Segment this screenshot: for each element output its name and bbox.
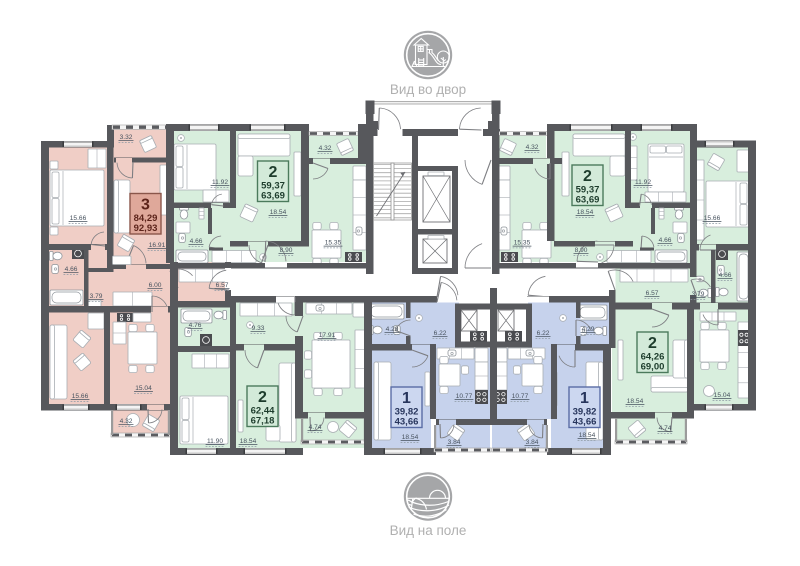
svg-text:4.32: 4.32 <box>120 418 133 425</box>
svg-text:15.66: 15.66 <box>72 393 89 400</box>
svg-text:18.54: 18.54 <box>402 434 419 441</box>
svg-text:8.90: 8.90 <box>575 247 588 254</box>
svg-text:15.66: 15.66 <box>704 215 721 222</box>
svg-text:4.66: 4.66 <box>659 237 672 244</box>
svg-text:15.35: 15.35 <box>514 240 531 247</box>
svg-text:6.00: 6.00 <box>149 282 162 289</box>
svg-text:11.90: 11.90 <box>207 438 223 445</box>
svg-text:10.77: 10.77 <box>456 393 473 400</box>
svg-text:18.54: 18.54 <box>627 398 644 405</box>
svg-text:18.54: 18.54 <box>579 432 596 439</box>
svg-text:16.91: 16.91 <box>149 242 166 249</box>
svg-text:15.35: 15.35 <box>325 240 342 247</box>
svg-text:Вид во двор: Вид во двор <box>390 82 466 97</box>
svg-text:2: 2 <box>648 335 657 352</box>
svg-text:2: 2 <box>269 164 278 181</box>
svg-text:4.29: 4.29 <box>386 326 399 333</box>
svg-text:15.04: 15.04 <box>714 392 731 399</box>
svg-text:43,66: 43,66 <box>395 417 419 428</box>
svg-text:4.66: 4.66 <box>190 238 203 245</box>
svg-text:6.22: 6.22 <box>537 330 550 337</box>
svg-text:15.04: 15.04 <box>135 385 152 392</box>
svg-text:3.79: 3.79 <box>90 293 103 300</box>
svg-text:3.84: 3.84 <box>526 439 539 446</box>
svg-text:9.33: 9.33 <box>252 325 265 332</box>
svg-text:4.66: 4.66 <box>719 272 732 279</box>
svg-text:18.54: 18.54 <box>240 438 257 445</box>
svg-text:69,00: 69,00 <box>641 362 665 373</box>
svg-text:6.57: 6.57 <box>216 282 229 289</box>
svg-text:63,69: 63,69 <box>261 191 285 202</box>
svg-text:15.66: 15.66 <box>70 215 87 222</box>
svg-text:3.79: 3.79 <box>692 291 705 298</box>
svg-text:1: 1 <box>402 390 411 407</box>
svg-text:4.29: 4.29 <box>582 326 595 333</box>
svg-text:3.84: 3.84 <box>448 439 461 446</box>
svg-text:4.74: 4.74 <box>659 425 672 432</box>
svg-text:4.66: 4.66 <box>65 266 78 273</box>
svg-text:18.54: 18.54 <box>577 209 594 216</box>
svg-text:6.57: 6.57 <box>646 290 659 297</box>
svg-text:92,93: 92,93 <box>134 223 158 234</box>
svg-text:4.32: 4.32 <box>319 145 332 152</box>
svg-text:Вид на поле: Вид на поле <box>390 523 467 538</box>
svg-text:4.74: 4.74 <box>309 424 322 431</box>
svg-text:17.91: 17.91 <box>319 332 336 339</box>
svg-text:2: 2 <box>583 168 592 185</box>
svg-text:1: 1 <box>580 390 589 407</box>
svg-text:6.22: 6.22 <box>434 330 447 337</box>
svg-text:8.90: 8.90 <box>280 247 293 254</box>
svg-text:4.76: 4.76 <box>189 322 202 329</box>
svg-text:11.92: 11.92 <box>212 179 228 186</box>
svg-text:10.77: 10.77 <box>512 393 529 400</box>
svg-text:3: 3 <box>141 197 150 214</box>
svg-text:63,69: 63,69 <box>576 195 600 206</box>
svg-text:4.32: 4.32 <box>526 144 539 151</box>
svg-text:43,66: 43,66 <box>573 417 597 428</box>
svg-text:18.54: 18.54 <box>270 209 287 216</box>
svg-text:2: 2 <box>258 389 267 406</box>
svg-text:67,18: 67,18 <box>251 416 275 427</box>
svg-text:3.32: 3.32 <box>120 134 133 141</box>
svg-text:11.92: 11.92 <box>635 179 651 186</box>
